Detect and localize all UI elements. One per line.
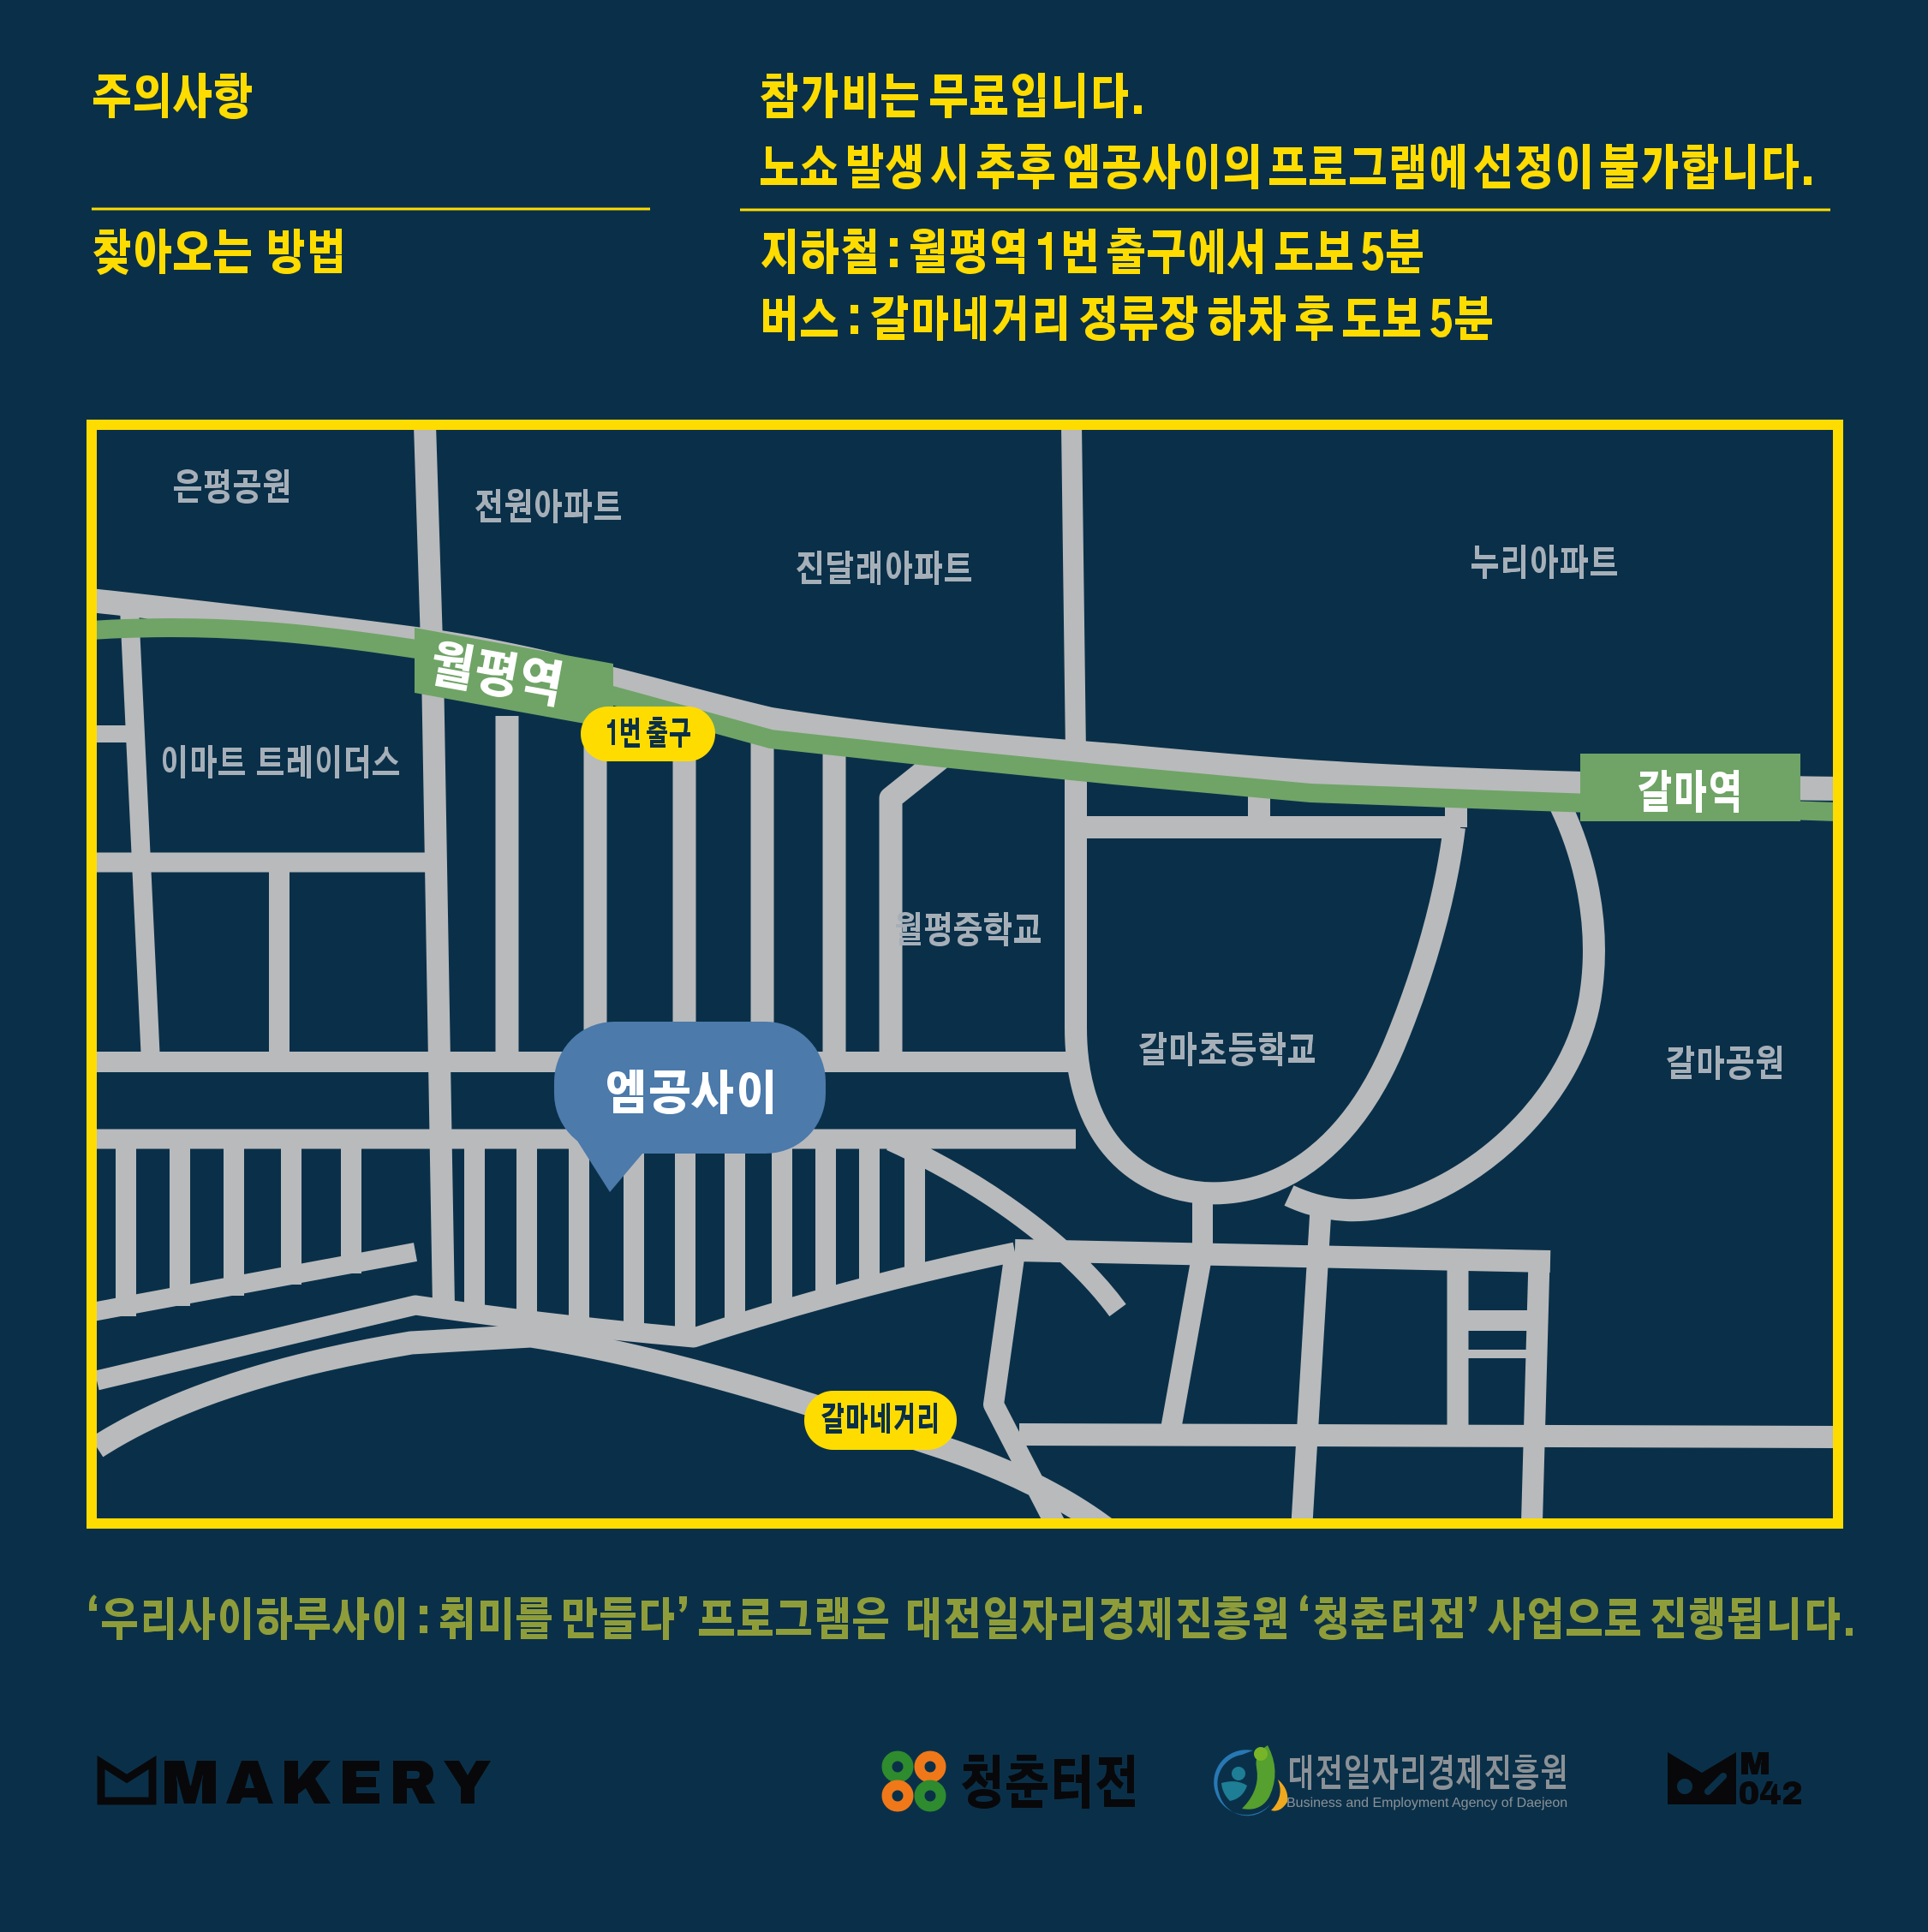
- svg-text:Business and Employment Agency: Business and Employment Agency of Daejeo…: [1286, 1796, 1567, 1810]
